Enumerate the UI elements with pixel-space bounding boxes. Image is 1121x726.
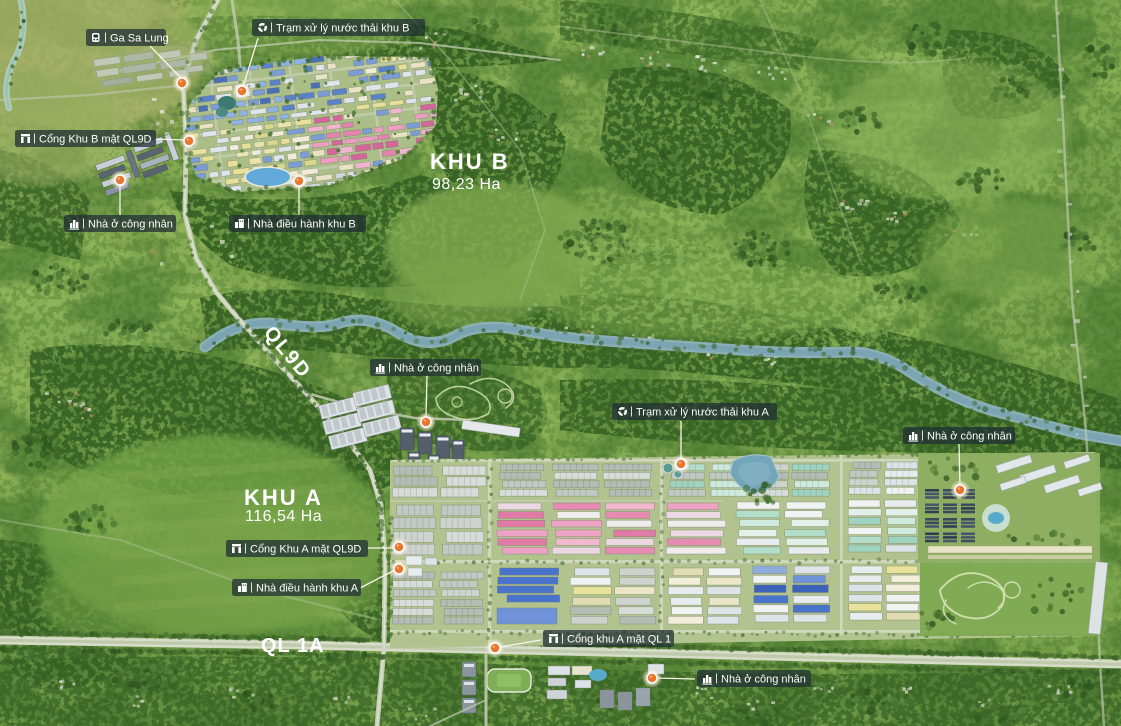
svg-text:Cổng khu A mặt QL 1: Cổng khu A mặt QL 1 (567, 634, 671, 646)
svg-text:Nhà ở công nhân: Nhà ở công nhân (394, 363, 479, 375)
svg-text:Trạm xử lý nước thải khu B: Trạm xử lý nước thải khu B (276, 23, 409, 35)
svg-text:Nhà ở công nhân: Nhà ở công nhân (88, 219, 173, 231)
svg-text:116,54 Ha: 116,54 Ha (245, 508, 322, 525)
svg-text:Cổng Khu A mặt QL9D: Cổng Khu A mặt QL9D (250, 544, 361, 556)
svg-text:Nhà điều hành khu B: Nhà điều hành khu B (253, 219, 356, 231)
svg-text:Cổng Khu B mặt QL9D: Cổng Khu B mặt QL9D (39, 134, 152, 146)
svg-text:KHU B: KHU B (430, 149, 510, 174)
svg-text:Nhà ở công nhân: Nhà ở công nhân (721, 674, 806, 686)
svg-text:Trạm xử lý nước thải khu A: Trạm xử lý nước thải khu A (636, 407, 769, 419)
svg-text:KHU A: KHU A (244, 485, 323, 510)
svg-text:98,23 Ha: 98,23 Ha (432, 176, 501, 193)
svg-text:Nhà ở công nhân: Nhà ở công nhân (927, 431, 1012, 443)
svg-text:Ga Sa Lung: Ga Sa Lung (110, 33, 169, 45)
svg-text:QL 1A: QL 1A (261, 635, 325, 657)
svg-text:Nhà điều hành khu A: Nhà điều hành khu A (256, 583, 359, 595)
